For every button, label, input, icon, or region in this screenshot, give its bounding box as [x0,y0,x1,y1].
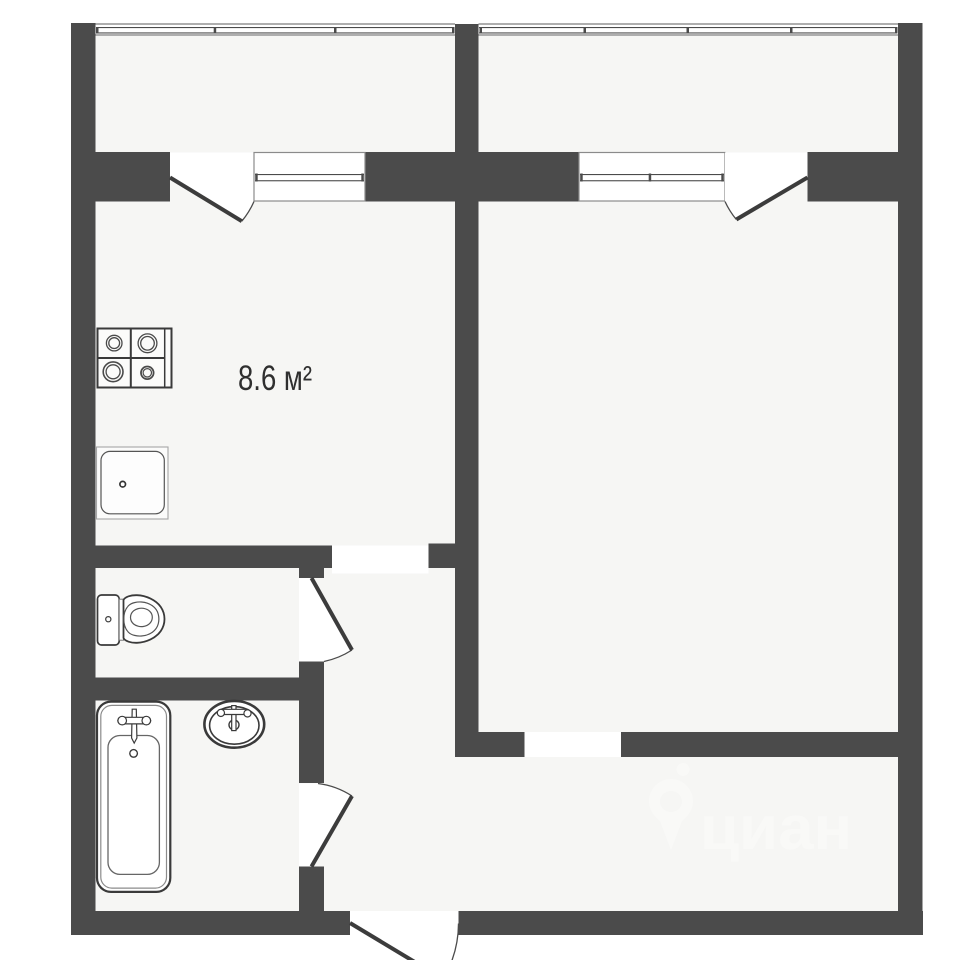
svg-text:циан: циан [700,794,852,863]
svg-text:8.6 м²: 8.6 м² [238,359,312,398]
